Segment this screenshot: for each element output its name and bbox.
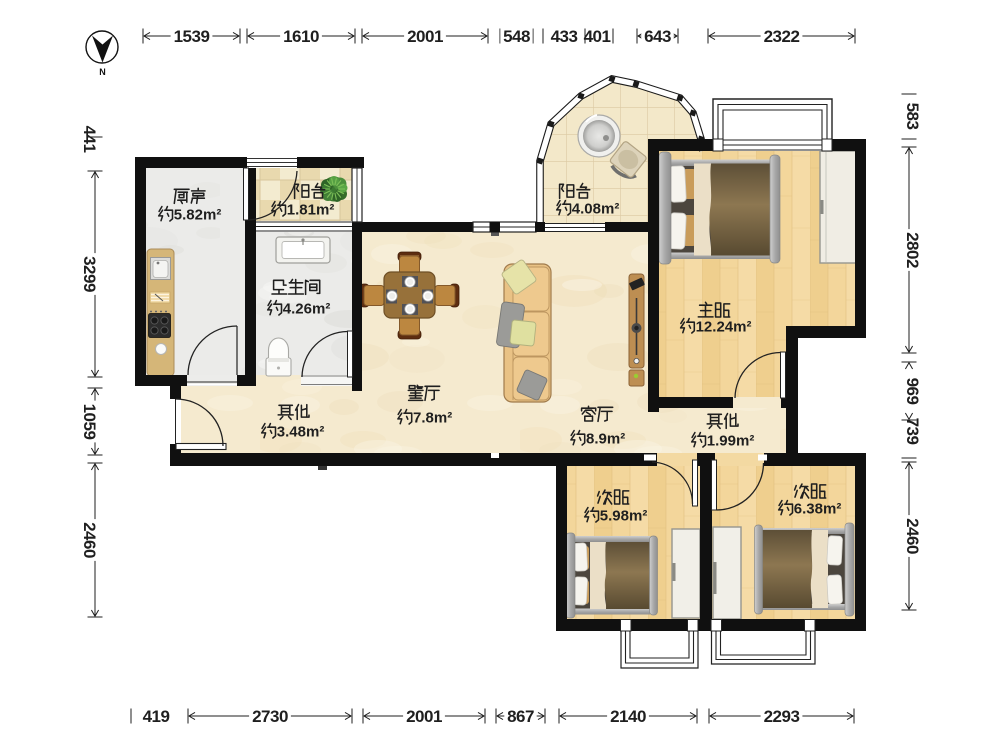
svg-text:2001: 2001 [406, 707, 442, 726]
svg-text:7.8m²: 7.8m² [413, 409, 452, 426]
svg-text:3.48m²: 3.48m² [277, 423, 325, 440]
svg-text:1059: 1059 [80, 404, 99, 440]
svg-text:2730: 2730 [252, 707, 288, 726]
svg-text:548: 548 [503, 27, 530, 46]
svg-text:8.9m²: 8.9m² [586, 430, 625, 447]
svg-text:3299: 3299 [80, 256, 99, 292]
svg-text:1539: 1539 [174, 27, 210, 46]
svg-text:12.24m²: 12.24m² [696, 318, 752, 335]
svg-text:583: 583 [903, 103, 922, 130]
svg-text:5.98m²: 5.98m² [600, 507, 648, 524]
svg-text:1.99m²: 1.99m² [707, 432, 755, 449]
svg-text:4.26m²: 4.26m² [283, 300, 331, 317]
svg-text:4.08m²: 4.08m² [572, 200, 620, 217]
svg-text:1.81m²: 1.81m² [287, 201, 335, 218]
svg-text:2802: 2802 [903, 232, 922, 268]
svg-text:2460: 2460 [903, 518, 922, 554]
svg-text:969: 969 [903, 378, 922, 405]
svg-text:2140: 2140 [610, 707, 646, 726]
svg-text:2293: 2293 [764, 707, 800, 726]
svg-text:739: 739 [903, 418, 922, 445]
svg-text:643: 643 [644, 27, 671, 46]
svg-text:1610: 1610 [283, 27, 319, 46]
svg-text:N: N [99, 67, 106, 77]
svg-text:2322: 2322 [764, 27, 800, 46]
svg-text:5.82m²: 5.82m² [174, 206, 222, 223]
svg-text:6.38m²: 6.38m² [794, 500, 842, 517]
svg-text:867: 867 [507, 707, 534, 726]
svg-text:441: 441 [80, 126, 99, 153]
svg-text:419: 419 [143, 707, 170, 726]
svg-text:401: 401 [584, 27, 611, 46]
svg-text:433: 433 [551, 27, 578, 46]
svg-text:2001: 2001 [407, 27, 443, 46]
svg-text:2460: 2460 [80, 522, 99, 558]
